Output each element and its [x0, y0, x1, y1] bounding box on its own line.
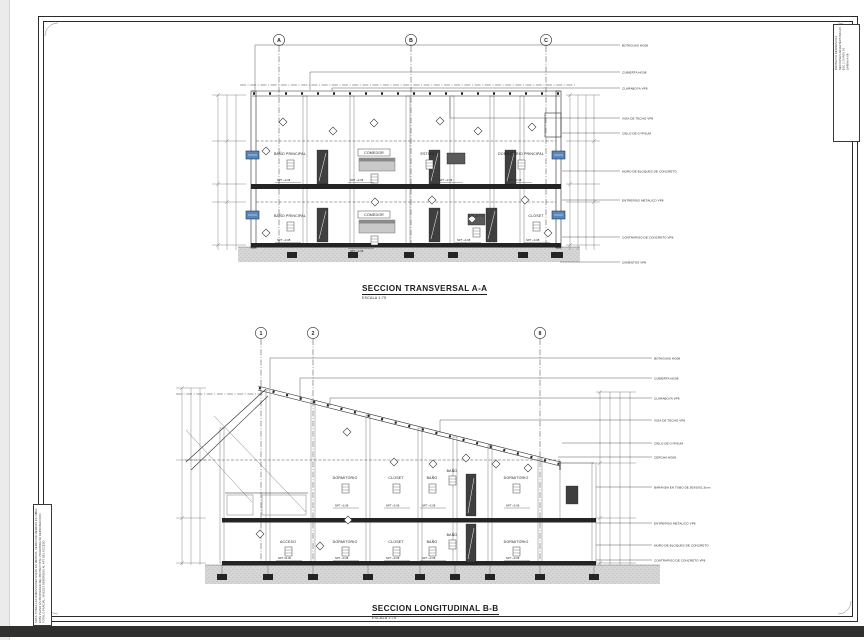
room-label: DORMITORIO	[333, 476, 358, 480]
dimension-chains-longitudinal	[176, 386, 636, 565]
annotation: ENTREPISO METALICO VP8	[622, 199, 664, 203]
npt-level: NPT +3.08	[506, 504, 520, 508]
room-label: DORMITORIO	[504, 540, 529, 544]
annotation: VIGA DE TECHO VP8	[654, 419, 685, 423]
drawing-sheet-page: PROYECTO RESIDENCIAL SECCIONES ARQUITECT…	[0, 0, 864, 640]
annotation: CIMIENTOS VP8	[622, 261, 646, 265]
annotation: CIELO DE GYPSUM	[622, 132, 651, 136]
room-label: COMEDOR	[364, 151, 384, 155]
room-label: CLOSET	[388, 476, 404, 480]
section-scale-transversal: ESCALA 1:75	[362, 296, 386, 300]
room-label: BAÑO	[427, 475, 438, 480]
npt-level: NPT +3.08	[508, 178, 522, 182]
annotation: MURO DE BLOQUES DE CONCRETO	[622, 170, 677, 174]
npt-level: NPT +3.08	[335, 504, 349, 508]
npt-level: NPT +0.08	[277, 238, 291, 242]
annotation: MURO DE BLOQUES DE CONCRETO	[654, 544, 709, 548]
npt-level: NPT +3.08	[439, 178, 453, 182]
side-window	[566, 486, 578, 504]
room-label: BAÑO	[447, 468, 458, 473]
grid-bubble-B: B	[409, 38, 413, 44]
annotation: CONTRAPISO DE CONCRETO VP8	[622, 236, 674, 240]
room-label: BAÑO PRINCIPAL	[274, 151, 306, 156]
annotation: BOTAGUAS HG08	[654, 357, 680, 361]
annotation: CERCHA HG08	[654, 456, 676, 460]
clerestory-window	[545, 113, 561, 137]
annotation: CUBIERTA HG08	[622, 71, 647, 75]
section-scale-longitudinal: ESCALA 1:75	[372, 616, 396, 620]
npt-level: NPT ±0.00	[278, 556, 292, 560]
npt-level: NPT +3.08	[277, 178, 291, 182]
annotation: BARANDA EN TUBO DE 50X50X1.5mm	[654, 486, 711, 490]
annotation: CLARABOYA VP8	[654, 397, 680, 401]
room-label: BAÑO PRINCIPAL	[274, 213, 306, 218]
grid-lines-longitudinal: 1 2 8	[255, 327, 545, 572]
npt-level: NPT +3.08	[386, 504, 400, 508]
rooms-upper-longitudinal: DORMITORIO CLOSET BAÑO BAÑO DORMITORIO N…	[333, 468, 530, 508]
general-notes-text: NOTA: TODAS LAS DIMENSIONES ESTAN EN MET…	[34, 505, 47, 625]
section-title-longitudinal: SECCION LONGITUDINAL B-B	[372, 604, 499, 615]
annotation: CUBIERTA HG08	[654, 377, 679, 381]
page-left-edge	[0, 0, 10, 640]
grid-bubble-A: A	[277, 38, 281, 44]
npt-level: NPT +0.08	[457, 238, 471, 242]
room-label: BAÑO	[427, 539, 438, 544]
annotation: CONTRAPISO DE CONCRETO VP8	[654, 559, 706, 563]
room-label: CLOSET	[528, 214, 544, 218]
npt-level: NPT +3.08	[350, 178, 364, 182]
npt-level: NPT +0.08	[335, 556, 349, 560]
room-label: ESTUDIO	[420, 152, 437, 156]
grid-bubble-1: 1	[260, 331, 263, 337]
grid-lines-transversal: A B C	[273, 34, 551, 252]
room-label: DORMITORIO	[333, 540, 358, 544]
room-label: SALA TV	[468, 214, 484, 218]
building-shell-transversal	[240, 85, 575, 258]
estudio-window	[447, 153, 465, 164]
npt-level: NPT +0.08	[422, 556, 436, 560]
room-label: DORMITORIO	[504, 476, 529, 480]
longitudinal-section-drawing: 1 2 8	[168, 322, 738, 602]
annotation: VIGA DE TECHO VP8	[622, 117, 653, 121]
section-title-transversal: SECCION TRANSVERSAL A-A	[362, 284, 487, 295]
annotation: CIELO DE GYPSUM	[654, 442, 683, 446]
title-block: PROYECTO RESIDENCIAL SECCIONES ARQUITECT…	[833, 24, 860, 142]
rooms-upper-transversal: BAÑO PRINCIPAL COMEDOR ESTUDIO DORMITORI…	[274, 149, 544, 183]
npt-level: NPT +0.08	[386, 556, 400, 560]
transversal-section-drawing: A B C	[195, 28, 715, 288]
room-label: COMEDOR	[364, 213, 384, 217]
npt-level: NPT +0.08	[506, 556, 520, 560]
grid-bubble-8: 8	[539, 331, 542, 337]
grid-bubble-C: C	[544, 38, 548, 44]
page-bottom-bar	[0, 626, 864, 637]
general-notes-strip: NOTA: TODAS LAS DIMENSIONES ESTAN EN MET…	[33, 504, 52, 626]
building-shell-longitudinal	[176, 386, 599, 580]
room-label: CLOSET	[388, 540, 404, 544]
room-label: BAÑO	[447, 532, 458, 537]
annotations-longitudinal: BOTAGUAS HG08 CUBIERTA HG08 CLARABOYA VP…	[270, 357, 711, 563]
title-block-text: PROYECTO RESIDENCIAL SECCIONES ARQUITECT…	[834, 25, 851, 72]
npt-level: NPT +0.08	[526, 238, 540, 242]
annotation: CLARABOYA VP8	[622, 87, 648, 91]
room-label: DORMITORIO PRINCIPAL	[498, 152, 544, 156]
room-label: ACCESO	[280, 540, 296, 544]
annotation: ENTREPISO METALICO VP8	[654, 522, 696, 526]
annotation: BOTAGUAS HG08	[622, 44, 648, 48]
npt-level: NPT +3.08	[422, 504, 436, 508]
grid-bubble-2: 2	[312, 331, 315, 337]
npt-level: NPT +0.08	[350, 249, 364, 253]
